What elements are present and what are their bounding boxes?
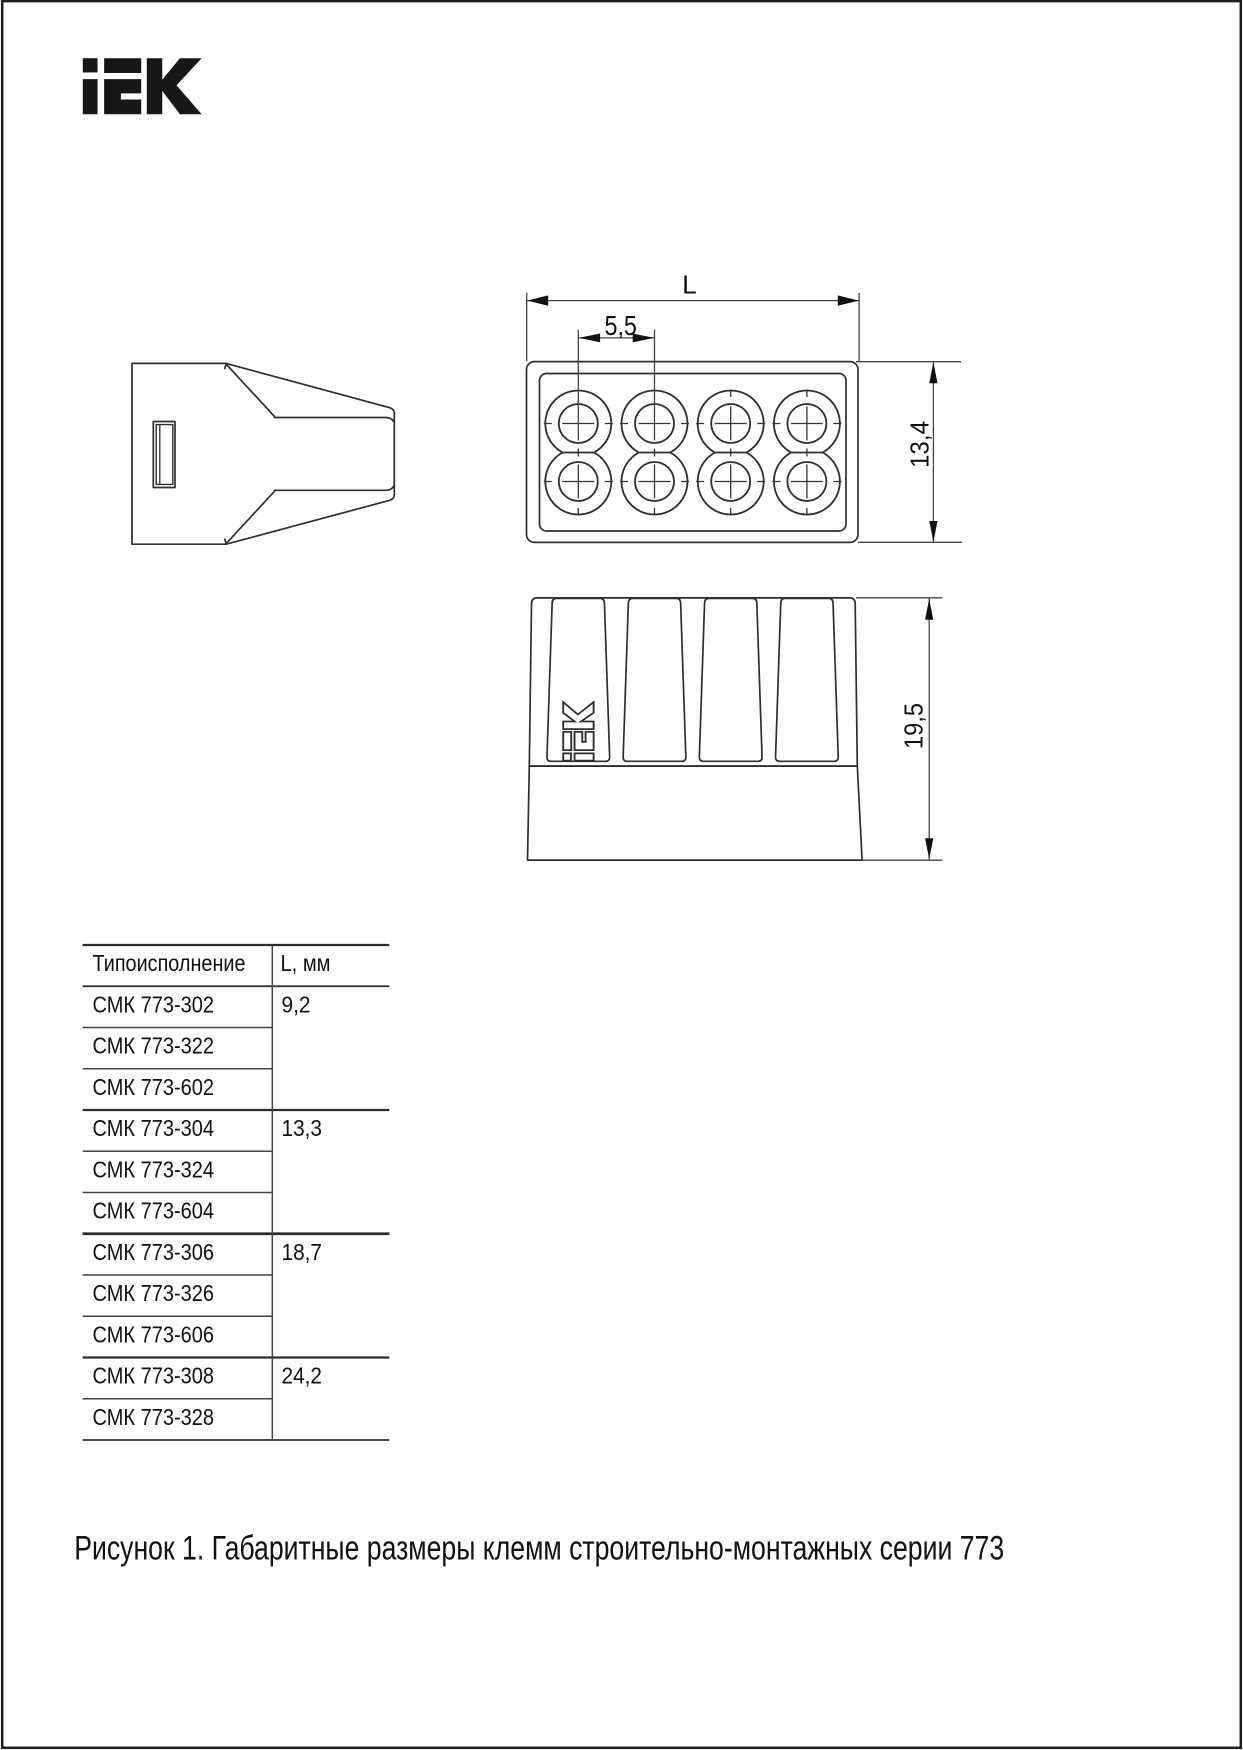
svg-text:L, мм: L, мм [281, 950, 331, 976]
svg-text:18,7: 18,7 [282, 1239, 323, 1265]
svg-text:Типоисполнение: Типоисполнение [93, 950, 246, 976]
svg-text:19,5: 19,5 [901, 703, 929, 749]
svg-text:Рисунок 1. Габаритные размеры: Рисунок 1. Габаритные размеры клемм стро… [74, 1530, 1004, 1568]
svg-text:L: L [682, 270, 696, 300]
svg-text:СМК 773-602: СМК 773-602 [93, 1074, 215, 1100]
svg-text:СМК 773-306: СМК 773-306 [93, 1239, 215, 1265]
svg-text:СМК 773-304: СМК 773-304 [93, 1115, 215, 1141]
svg-text:13,3: 13,3 [282, 1115, 323, 1141]
svg-text:СМК 773-606: СМК 773-606 [93, 1321, 215, 1347]
svg-text:СМК 773-328: СМК 773-328 [93, 1404, 215, 1430]
svg-text:24,2: 24,2 [282, 1363, 323, 1389]
svg-text:СМК 773-302: СМК 773-302 [93, 991, 215, 1017]
svg-text:СМК 773-308: СМК 773-308 [93, 1363, 215, 1389]
svg-text:СМК 773-322: СМК 773-322 [93, 1033, 215, 1059]
svg-text:СМК 773-324: СМК 773-324 [93, 1156, 215, 1182]
svg-text:13,4: 13,4 [907, 421, 935, 468]
svg-text:СМК 773-604: СМК 773-604 [93, 1198, 215, 1224]
svg-text:5,5: 5,5 [604, 310, 637, 341]
svg-text:9,2: 9,2 [282, 991, 311, 1017]
svg-text:СМК 773-326: СМК 773-326 [93, 1280, 215, 1306]
